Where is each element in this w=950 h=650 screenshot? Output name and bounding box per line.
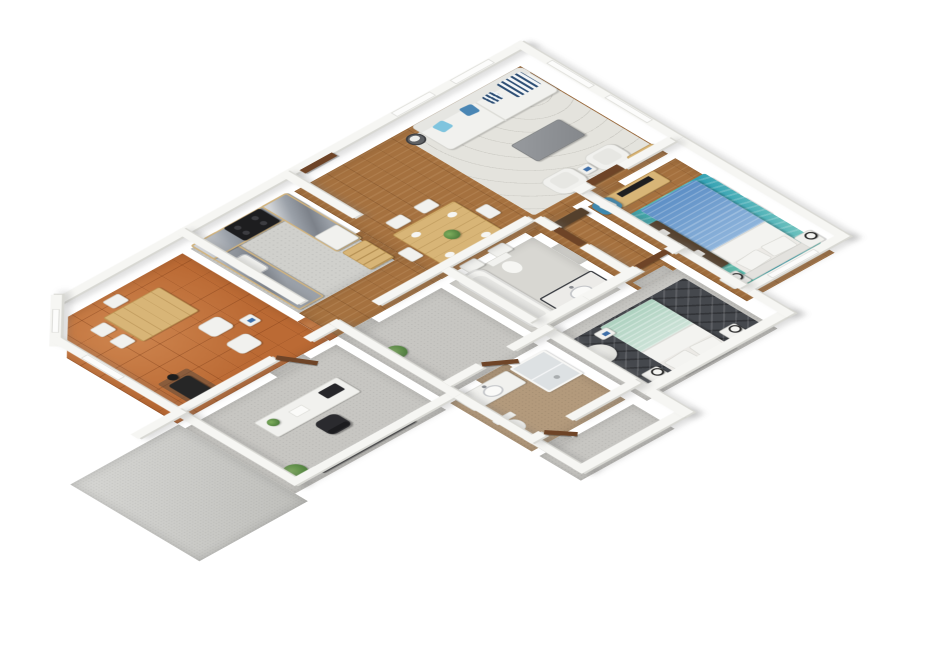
- desk-papers: [288, 405, 310, 418]
- table-plant: [440, 228, 464, 242]
- burner-4: [258, 220, 269, 226]
- basket-blanket: [408, 134, 422, 142]
- side-table-book: [583, 166, 592, 171]
- bedroom2-table-book: [602, 331, 611, 336]
- hall-threshold: [525, 228, 541, 237]
- family-chamfer-window: [52, 309, 60, 333]
- living-window-1: [391, 91, 436, 116]
- sofa-cushion-divider: [475, 102, 507, 121]
- book-on-table: [247, 318, 256, 323]
- living-right-window-2: [604, 94, 653, 123]
- desk-plant: [264, 417, 282, 428]
- plate-2: [445, 211, 459, 219]
- building: [16, 55, 925, 575]
- plate-1: [409, 231, 423, 239]
- burner-1: [232, 225, 243, 231]
- office-monitor: [318, 383, 346, 399]
- living-right-window-1: [546, 60, 595, 89]
- burner-2: [250, 215, 261, 221]
- living-window-2: [450, 59, 495, 84]
- shower-drain: [552, 374, 561, 379]
- floor-plan-render: [0, 0, 950, 650]
